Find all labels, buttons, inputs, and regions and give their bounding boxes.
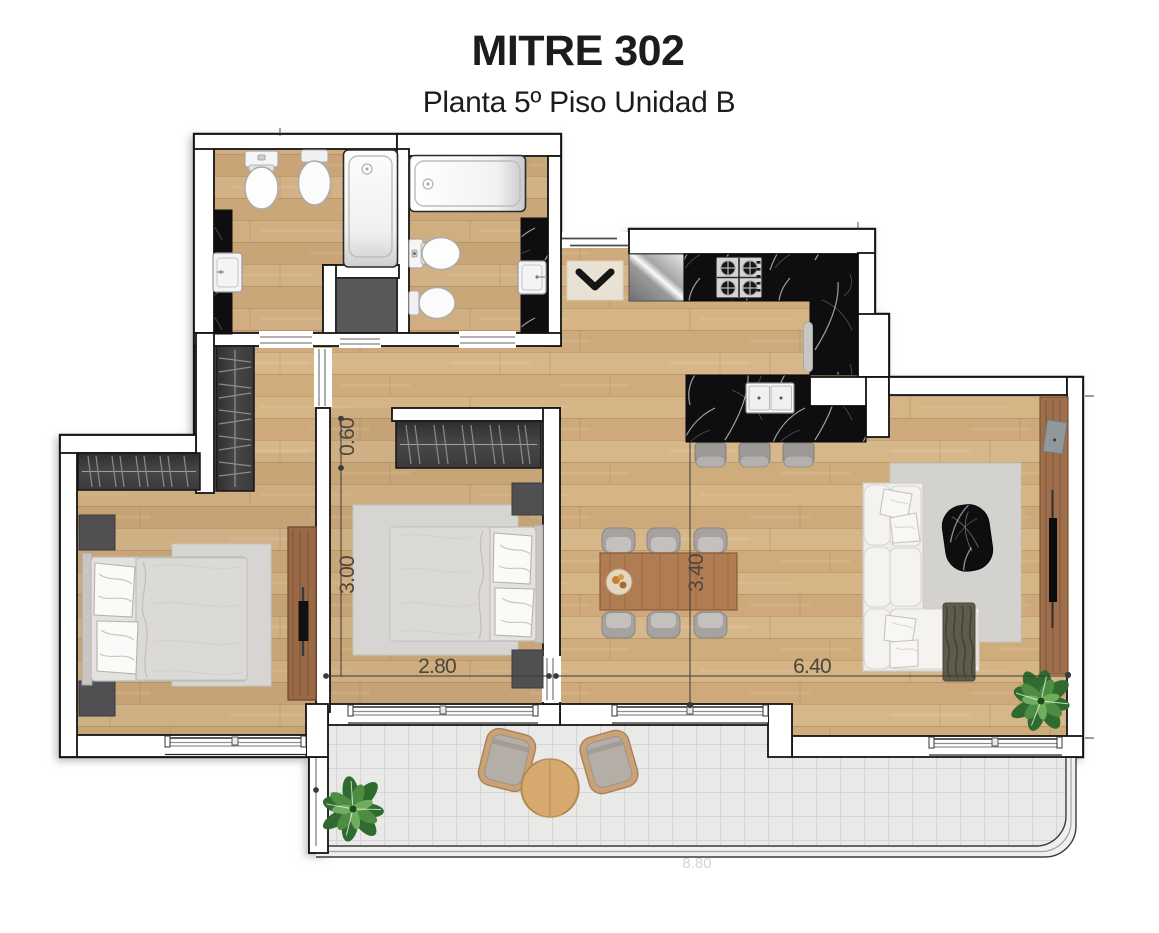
svg-text:MITRE 302: MITRE 302 (472, 27, 685, 75)
svg-text:8.80: 8.80 (682, 855, 711, 872)
svg-text:3.00: 3.00 (336, 556, 359, 594)
svg-text:2.80: 2.80 (418, 655, 456, 678)
svg-text:0.60: 0.60 (336, 418, 359, 456)
svg-text:Planta 5º Piso Unidad B: Planta 5º Piso Unidad B (423, 86, 736, 119)
svg-text:3.40: 3.40 (685, 554, 708, 592)
svg-text:6.40: 6.40 (793, 655, 831, 678)
